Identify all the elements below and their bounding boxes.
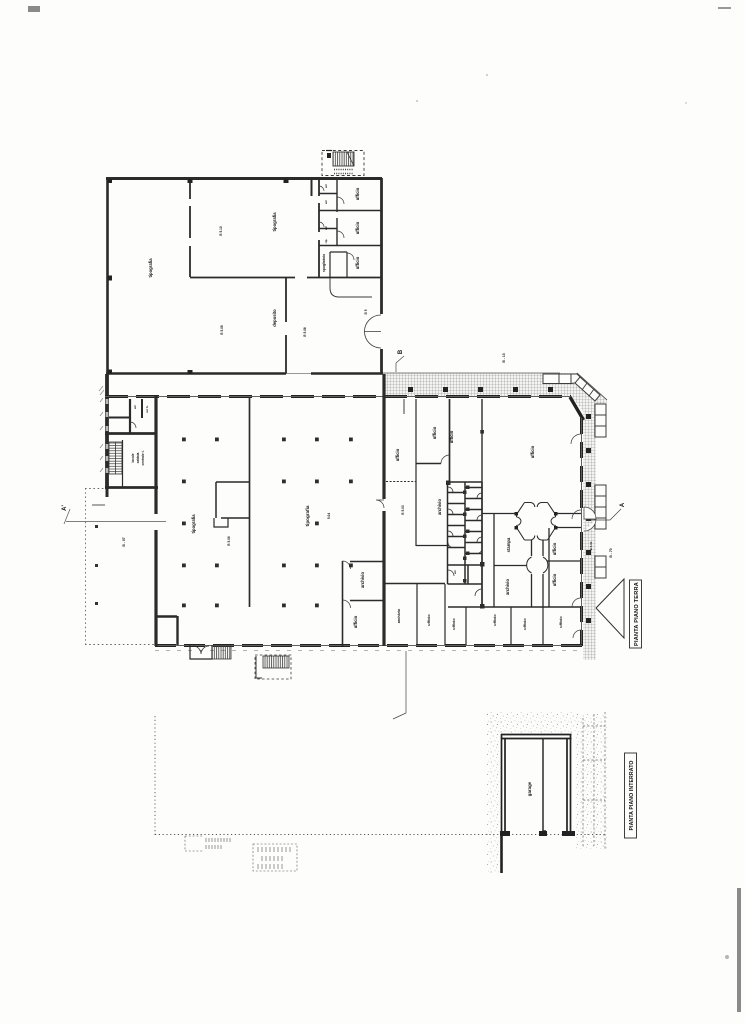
svg-text:tipografia: tipografia [272,212,277,232]
svg-text:B - 70: B - 70 [609,548,613,557]
svg-text:PIANTA PIANO INTERRATO: PIANTA PIANO INTERRATO [629,760,635,830]
svg-text:ufficio: ufficio [395,448,400,461]
svg-text:wc: wc [133,405,137,410]
svg-text:B 5: B 5 [364,309,368,314]
svg-text:centrale t.: centrale t. [141,450,145,465]
svg-text:garage: garage [527,781,532,796]
svg-text:B 5.08: B 5.08 [303,327,307,337]
svg-text:ufficio: ufficio [559,616,563,628]
svg-text:ufficio: ufficio [355,221,360,234]
svg-text:PIANTA PIANO TERRA: PIANTA PIANO TERRA [634,582,640,646]
svg-text:archivio: archivio [437,499,442,516]
svg-text:ufficio: ufficio [552,573,557,586]
svg-text:wc b.: wc b. [145,405,149,414]
svg-text:ufficio: ufficio [449,430,454,443]
svg-text:ufficio: ufficio [427,614,431,626]
svg-text:deposito: deposito [272,309,277,327]
svg-text:archivio: archivio [397,608,401,623]
svg-text:B 5.03: B 5.03 [401,505,405,515]
svg-text:ufficio: ufficio [530,445,535,458]
svg-text:B 5.01: B 5.01 [589,541,593,550]
svg-text:stampa: stampa [506,537,511,552]
svg-text:archivio: archivio [360,572,365,589]
svg-text:archivio: archivio [505,579,510,596]
svg-text:A: A [620,502,626,507]
svg-text:locale: locale [131,453,135,462]
svg-text:wc: wc [453,570,457,575]
svg-text:ufficio: ufficio [493,614,497,626]
svg-text:B 5.09: B 5.09 [220,325,224,335]
svg-text:spogliatoio: spogliatoio [322,254,326,272]
svg-text:ufficio: ufficio [355,256,360,269]
svg-text:wc: wc [324,200,328,205]
svg-text:5.04: 5.04 [327,513,331,519]
svg-text:caldaia: caldaia [136,452,140,463]
svg-text:rip.: rip. [324,239,328,244]
svg-text:ufficio: ufficio [523,618,527,630]
svg-text:ufficio: ufficio [452,618,456,630]
svg-text:ufficio: ufficio [355,187,360,200]
svg-text:A': A' [62,505,68,511]
svg-text:B: B [398,349,404,354]
svg-text:B 5.10: B 5.10 [219,226,223,236]
svg-text:ufficio: ufficio [432,426,437,439]
svg-text:B - 07: B - 07 [122,537,126,546]
svg-text:tipografia: tipografia [305,505,310,526]
svg-text:tipografia: tipografia [191,514,196,534]
svg-text:B - 13: B - 13 [502,353,506,362]
svg-text:wc: wc [324,226,328,231]
svg-text:ufficio: ufficio [552,542,557,555]
svg-text:wc: wc [324,184,328,189]
svg-text:B 5.06: B 5.06 [227,536,231,546]
svg-text:tipografia: tipografia [148,258,153,278]
svg-text:ufficio: ufficio [353,615,358,628]
